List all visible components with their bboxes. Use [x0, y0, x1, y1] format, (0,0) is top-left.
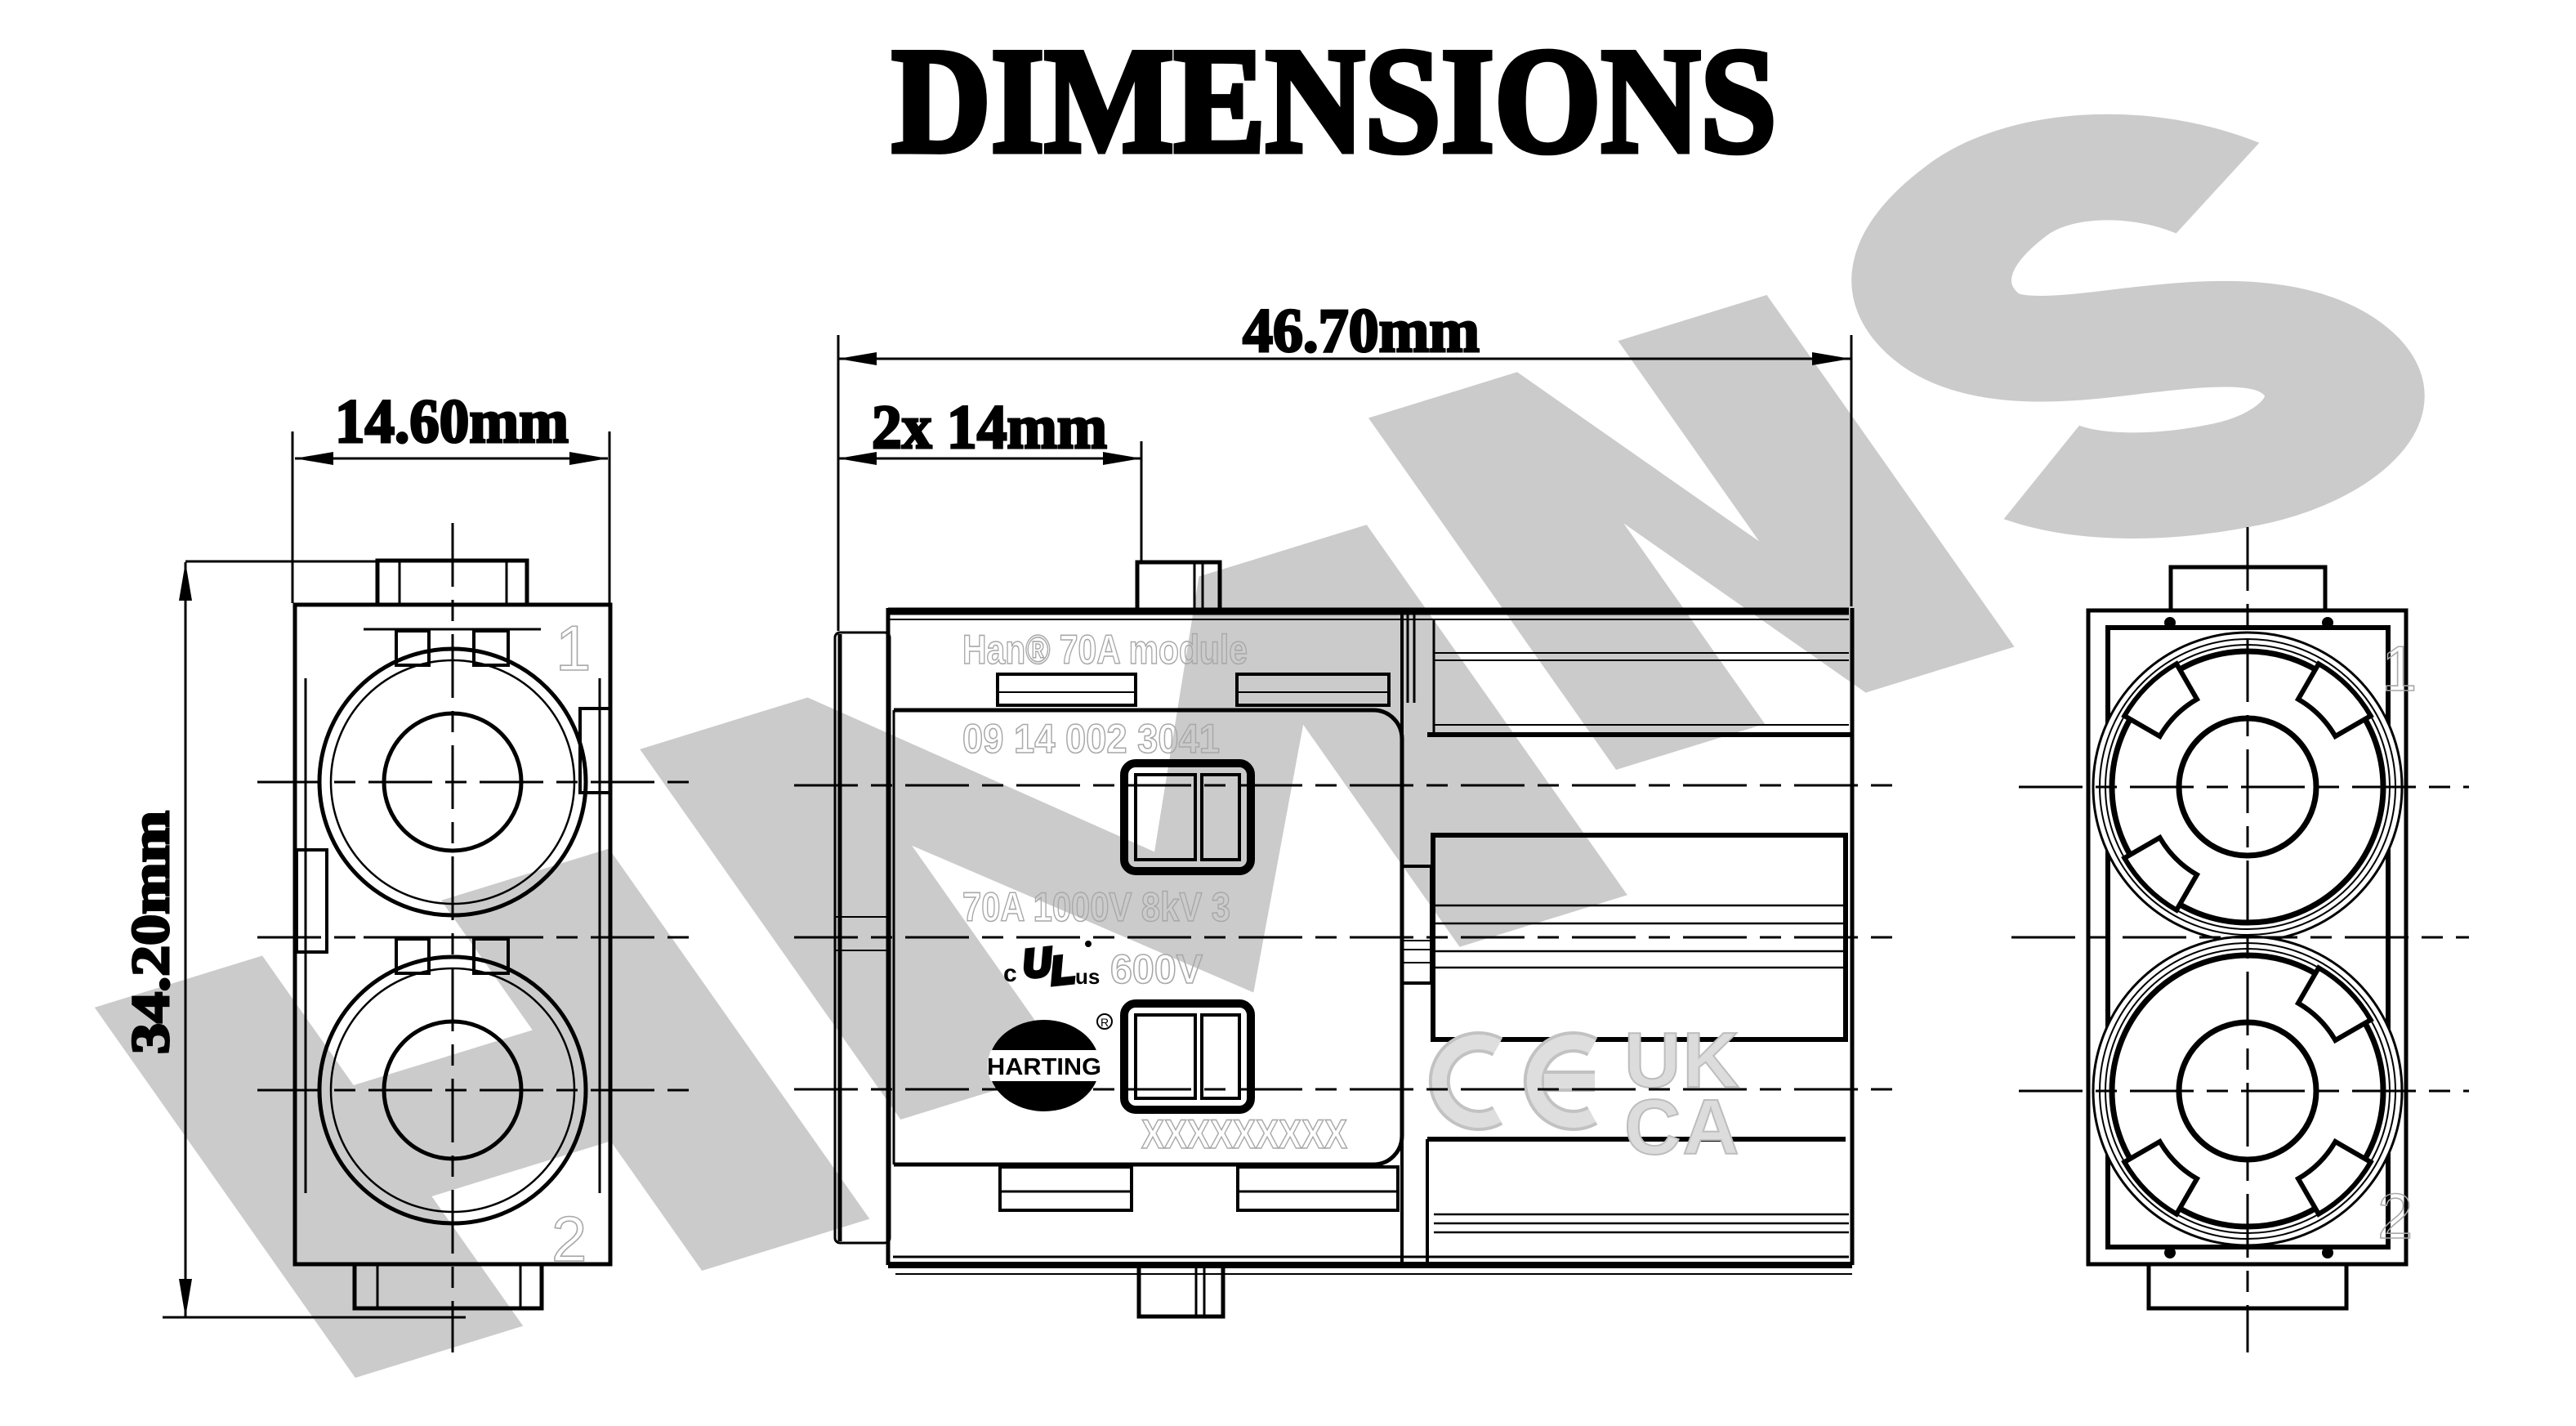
- svg-text:600V: 600V: [1110, 946, 1203, 992]
- svg-text:DIMENSIONS: DIMENSIONS: [892, 17, 1777, 184]
- svg-text:46.70mm: 46.70mm: [1243, 297, 1480, 365]
- svg-text:R: R: [1100, 1016, 1109, 1029]
- svg-text:c: c: [1003, 960, 1017, 987]
- svg-text:14.60mm: 14.60mm: [335, 387, 569, 456]
- svg-text:34.20mm: 34.20mm: [121, 811, 181, 1054]
- svg-text:2: 2: [2377, 1180, 2413, 1252]
- svg-text:us: us: [1075, 964, 1100, 989]
- svg-text:XXXXXXXXX: XXXXXXXXX: [1141, 1111, 1347, 1157]
- svg-text:Han® 70A module: Han® 70A module: [962, 627, 1248, 673]
- svg-text:HARTING: HARTING: [987, 1054, 1101, 1080]
- svg-text:2x 14mm: 2x 14mm: [872, 393, 1107, 462]
- svg-text:1: 1: [556, 612, 591, 684]
- svg-text:09 14 002 3041: 09 14 002 3041: [962, 716, 1220, 762]
- svg-text:1: 1: [2382, 633, 2417, 704]
- svg-text:2: 2: [551, 1203, 587, 1275]
- svg-text:CA: CA: [1624, 1084, 1741, 1171]
- svg-text:L: L: [1048, 948, 1077, 994]
- svg-text:70A 1000V 8kV 3: 70A 1000V 8kV 3: [962, 884, 1230, 930]
